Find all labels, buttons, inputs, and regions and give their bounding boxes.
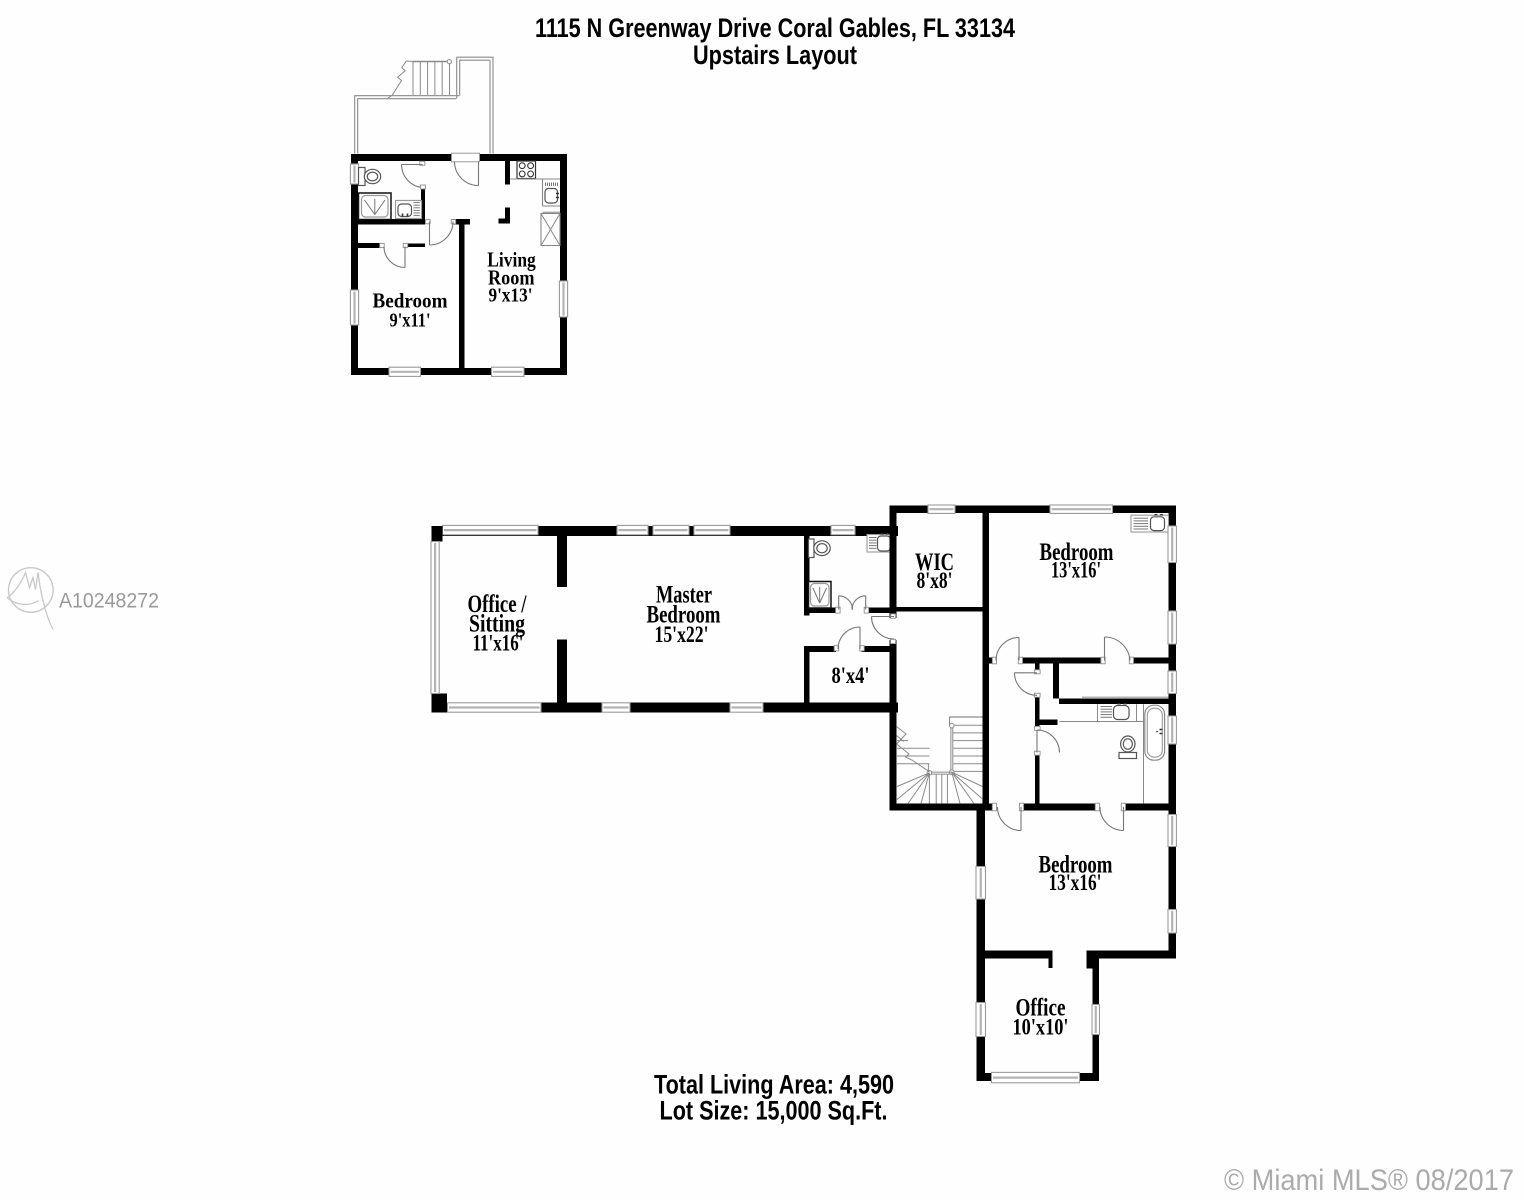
svg-text:A10248272: A10248272	[59, 589, 159, 613]
svg-text:15'x22': 15'x22'	[655, 622, 709, 647]
svg-text:10'x10': 10'x10'	[1013, 1015, 1069, 1040]
svg-text:11'x16': 11'x16'	[473, 631, 524, 656]
svg-text:Upstairs Layout: Upstairs Layout	[693, 40, 857, 70]
svg-text:1115 N Greenway Drive Coral Ga: 1115 N Greenway Drive Coral Gables, FL 3…	[535, 13, 1015, 43]
svg-text:© Miami MLS® 08/2017: © Miami MLS® 08/2017	[1224, 1164, 1514, 1197]
svg-text:8'x8': 8'x8'	[917, 568, 953, 593]
svg-text:13'x16': 13'x16'	[1051, 558, 1101, 583]
svg-text:8'x4': 8'x4'	[832, 663, 870, 688]
svg-text:9'x13': 9'x13'	[489, 285, 533, 307]
svg-text:9'x11': 9'x11'	[390, 310, 431, 332]
svg-text:Lot Size: 15,000 Sq.Ft.: Lot Size: 15,000 Sq.Ft.	[660, 1096, 888, 1126]
svg-text:13'x16': 13'x16'	[1049, 870, 1102, 895]
